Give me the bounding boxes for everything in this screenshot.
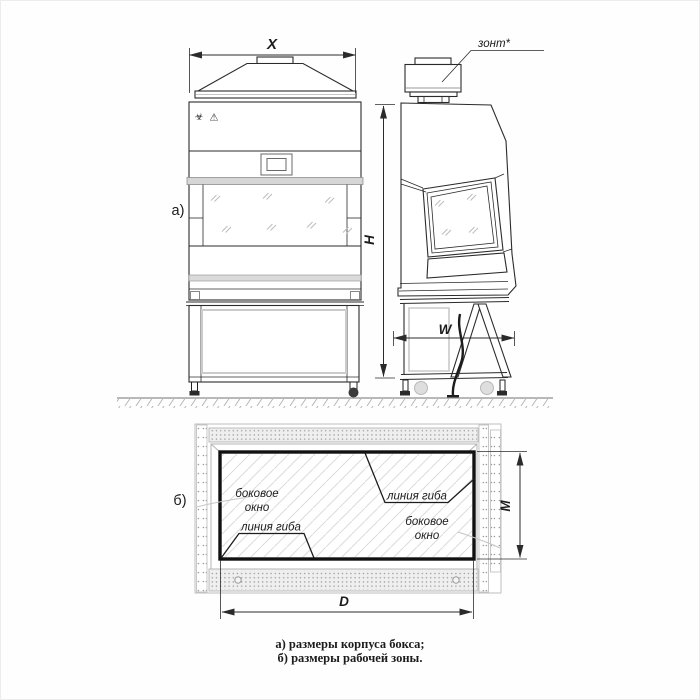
side-view: зонт* [394, 38, 545, 399]
caption: а) размеры корпуса бокса; б) размеры раб… [275, 637, 424, 665]
stand-rear-leg [451, 304, 481, 377]
leveling-foot [192, 382, 198, 391]
hood-label: зонт* [477, 38, 511, 50]
svg-text:боковое: боковое [405, 516, 448, 528]
side-body [398, 103, 516, 296]
dim-x-label: X [266, 36, 278, 53]
front-view: ☣ ⚠ [186, 57, 364, 398]
drawing-canvas: ☣ ⚠ [1, 1, 700, 700]
svg-text:окно: окно [415, 530, 440, 542]
caption-line-b: б) размеры рабочей зоны. [278, 651, 423, 665]
plan-view: линия гиба линия гиба боковое окно боков… [173, 424, 527, 619]
front-stand [186, 302, 364, 398]
dim-w-label: W [439, 322, 453, 337]
hood-cap [257, 57, 293, 64]
view-b-label: б) [173, 493, 186, 509]
stand-front-leg [478, 304, 511, 377]
svg-text:боковое: боковое [235, 488, 278, 500]
caption-line-a: а) размеры корпуса бокса; [275, 637, 424, 651]
ground [117, 398, 553, 408]
dim-h: H [362, 105, 395, 379]
sash-rail [187, 178, 363, 185]
biohazard-icon: ☣ [195, 112, 204, 123]
bend-line-label-upper: линия гиба [386, 491, 447, 503]
view-a-label: а) [172, 203, 185, 219]
stand-panel [202, 310, 346, 373]
side-hood-cap [415, 58, 451, 65]
technical-drawing-page: ☣ ⚠ [0, 0, 700, 700]
warning-icon: ⚠ [210, 113, 219, 124]
hood-canopy [198, 64, 353, 92]
side-stand [400, 298, 511, 399]
bend-line-label-lower: линия гиба [240, 522, 301, 534]
dim-h-label: H [362, 235, 377, 245]
dim-m-label: M [498, 500, 513, 512]
dim-d-label: D [339, 594, 349, 609]
svg-text:окно: окно [245, 502, 270, 514]
caster-wheel [349, 388, 359, 398]
worktop-edge [189, 275, 361, 281]
